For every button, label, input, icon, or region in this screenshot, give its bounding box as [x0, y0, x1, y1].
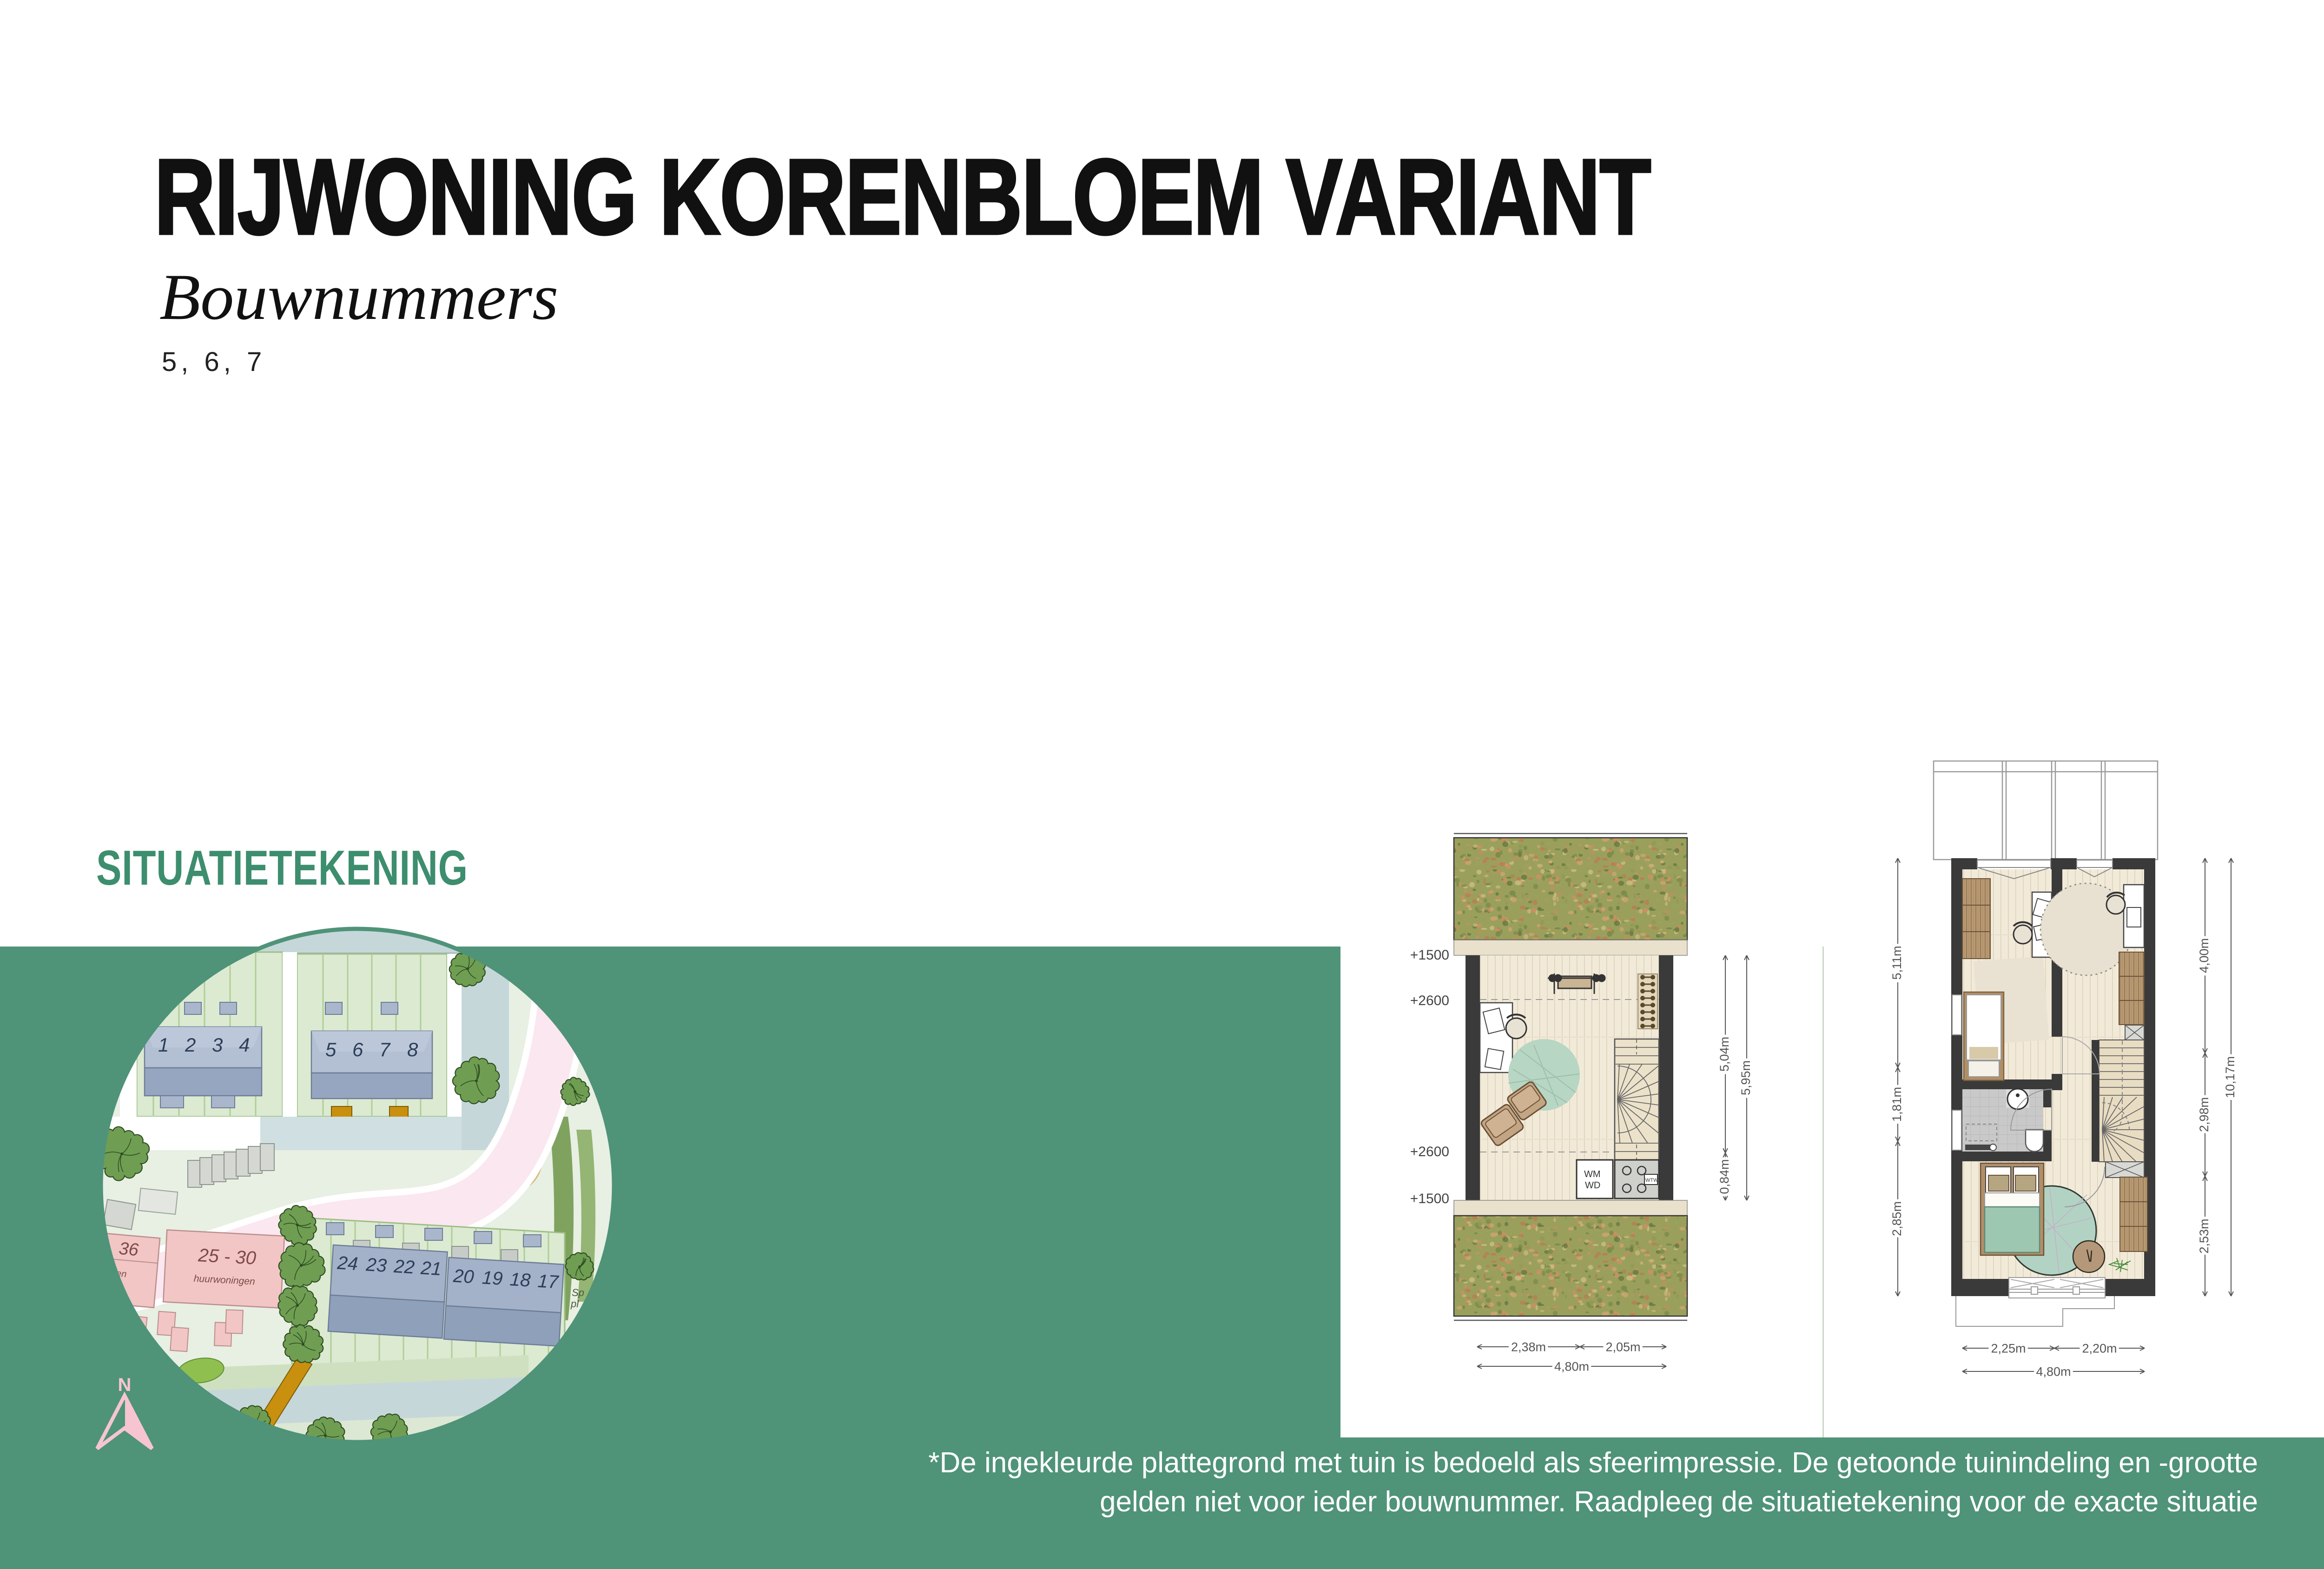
svg-text:4,00m: 4,00m	[2197, 938, 2211, 973]
svg-text:2,05m: 2,05m	[1605, 1340, 1640, 1354]
svg-text:2,38m: 2,38m	[1511, 1340, 1546, 1354]
svg-text:1: 1	[158, 1034, 169, 1056]
svg-text:0,84m: 0,84m	[1717, 1159, 1731, 1194]
svg-text:19: 19	[482, 1267, 503, 1289]
svg-text:2,85m: 2,85m	[1890, 1201, 1904, 1236]
svg-text:8: 8	[407, 1039, 418, 1060]
svg-text:21: 21	[420, 1258, 442, 1279]
svg-text:+2600: +2600	[1410, 993, 1449, 1008]
svg-text:3: 3	[212, 1034, 223, 1056]
svg-text:2,20m: 2,20m	[2082, 1341, 2117, 1355]
svg-text:2,98m: 2,98m	[2197, 1097, 2211, 1132]
svg-text:4,80m: 4,80m	[1554, 1359, 1589, 1373]
svg-text:+1500: +1500	[1410, 1191, 1449, 1206]
svg-text:WTW: WTW	[1645, 1178, 1658, 1183]
svg-text:4: 4	[239, 1034, 250, 1056]
svg-text:4,80m: 4,80m	[2036, 1364, 2071, 1378]
svg-text:2,25m: 2,25m	[1991, 1341, 2026, 1355]
svg-text:5,95m: 5,95m	[1739, 1060, 1753, 1095]
svg-text:17: 17	[537, 1271, 560, 1293]
svg-text:Sp: Sp	[572, 1287, 584, 1298]
svg-text:1,81m: 1,81m	[1890, 1087, 1904, 1122]
svg-text:22: 22	[393, 1256, 415, 1278]
svg-text:2: 2	[185, 1034, 196, 1056]
svg-text:+2600: +2600	[1410, 1144, 1449, 1159]
svg-text:23: 23	[365, 1254, 387, 1276]
svg-text:7: 7	[379, 1039, 391, 1060]
svg-text:24: 24	[336, 1252, 358, 1274]
svg-text:5: 5	[325, 1039, 337, 1060]
svg-text:20: 20	[452, 1265, 475, 1287]
svg-text:36: 36	[118, 1239, 140, 1260]
svg-text:5,04m: 5,04m	[1717, 1037, 1731, 1072]
svg-text:5,11m: 5,11m	[1890, 946, 1904, 980]
svg-text:25 - 30: 25 - 30	[197, 1245, 257, 1269]
svg-text:pl: pl	[570, 1298, 579, 1310]
svg-text:18: 18	[509, 1269, 532, 1291]
svg-text:+1500: +1500	[1410, 947, 1449, 963]
svg-text:WM: WM	[1584, 1169, 1601, 1179]
svg-text:10,17m: 10,17m	[2223, 1056, 2237, 1098]
svg-text:WD: WD	[1585, 1180, 1600, 1191]
svg-text:6: 6	[352, 1039, 363, 1060]
svg-text:2,53m: 2,53m	[2197, 1218, 2211, 1253]
